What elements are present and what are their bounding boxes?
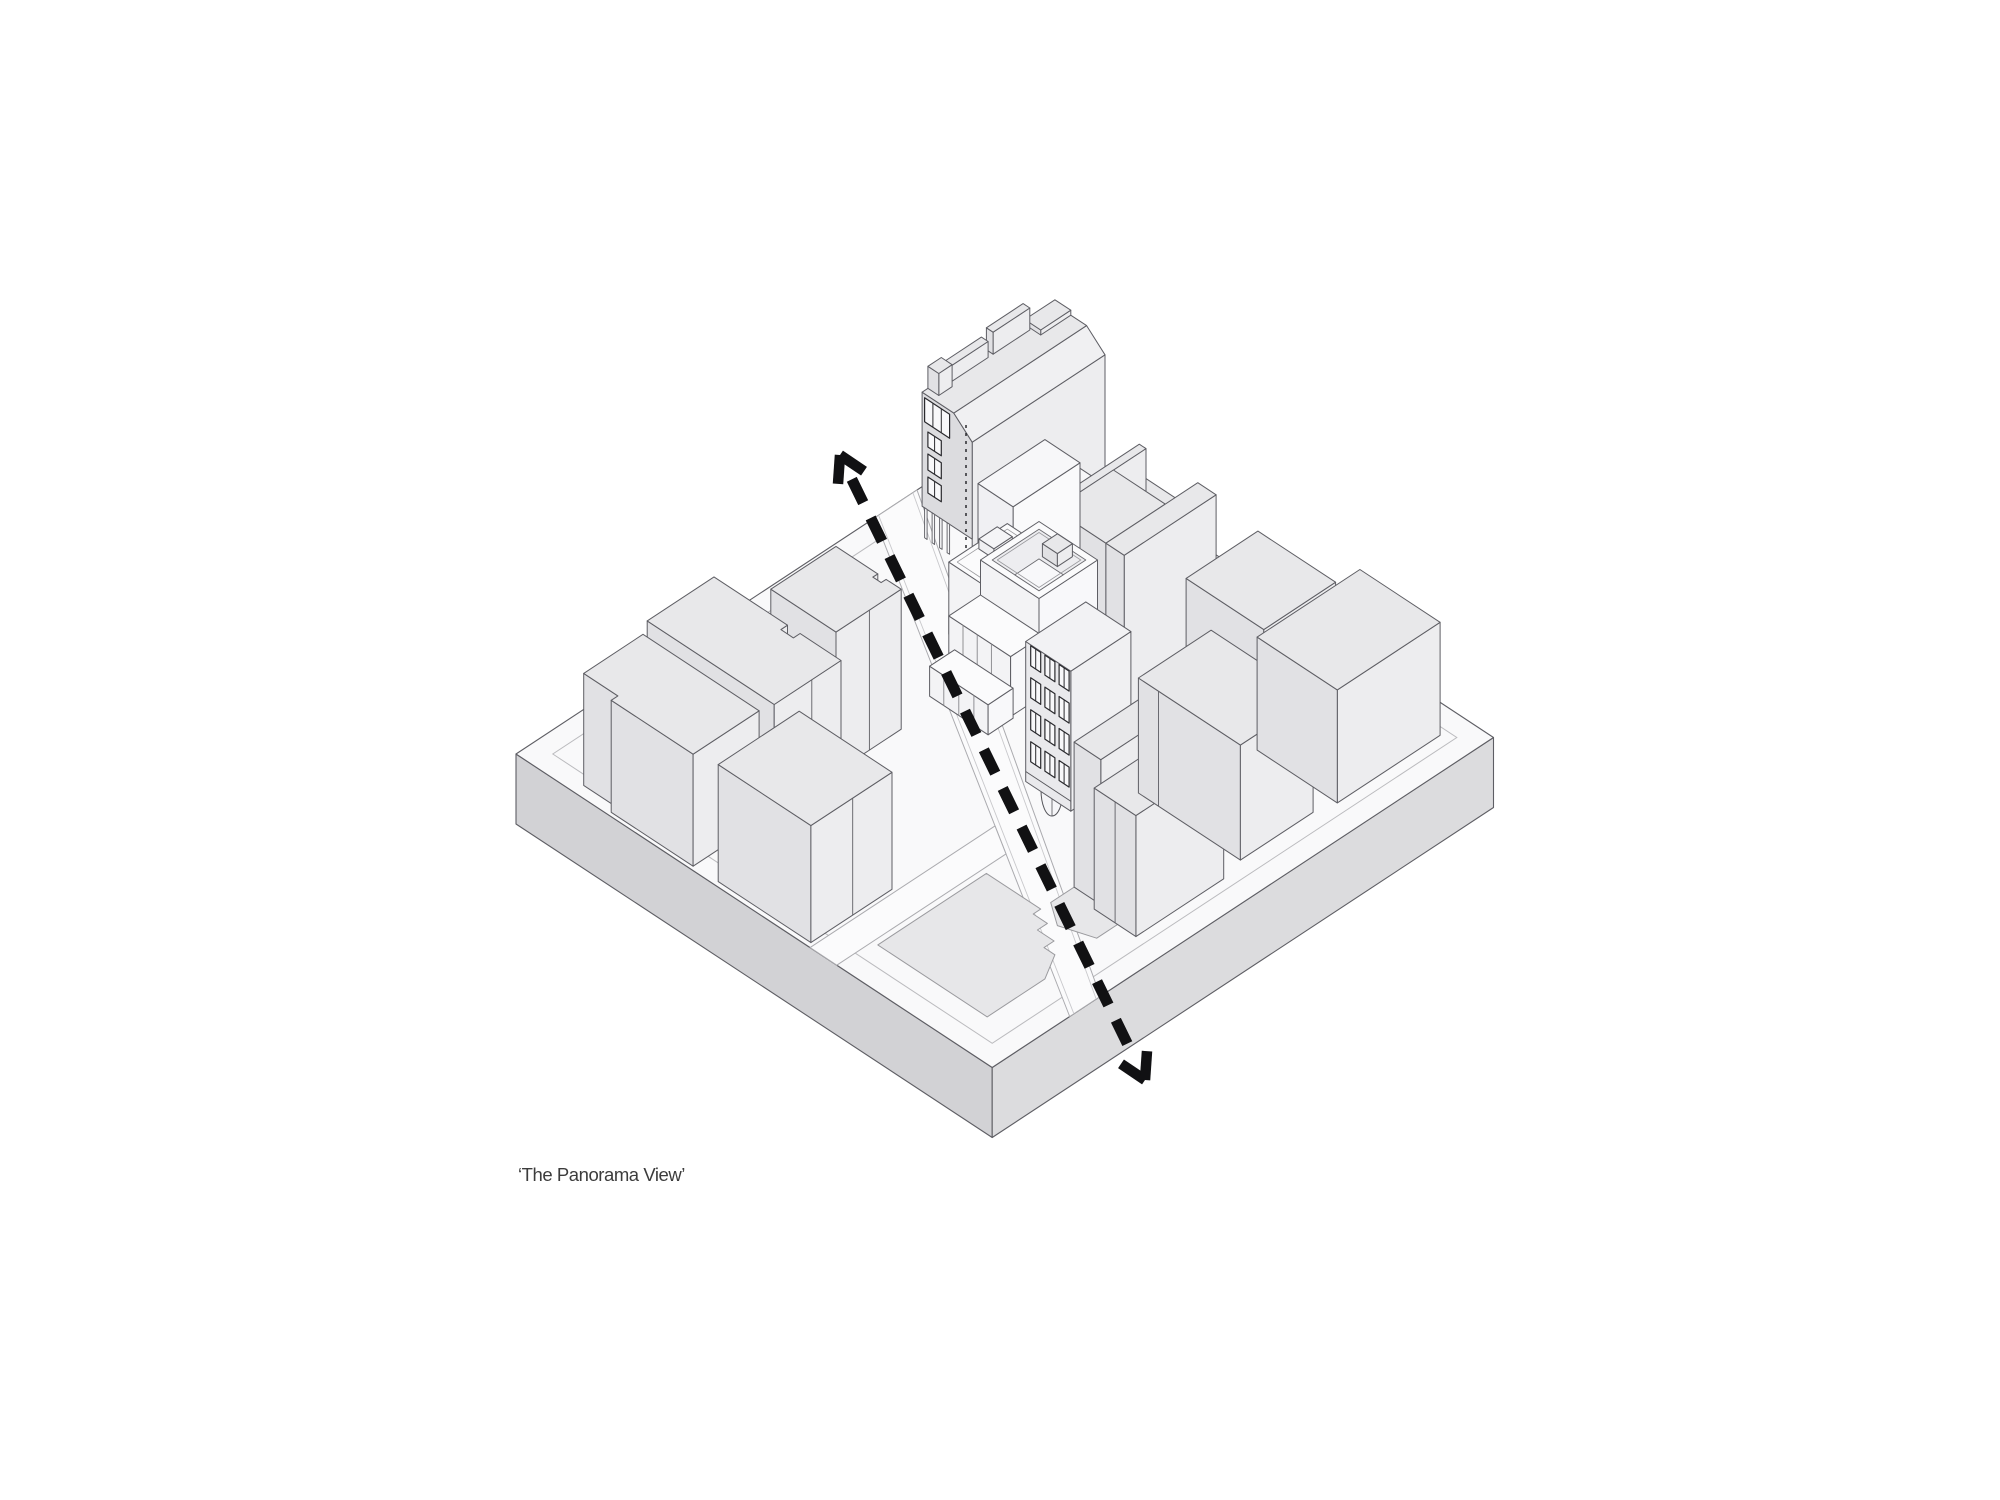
svg-text:‘The Panorama View’: ‘The Panorama View’ xyxy=(518,1164,685,1185)
